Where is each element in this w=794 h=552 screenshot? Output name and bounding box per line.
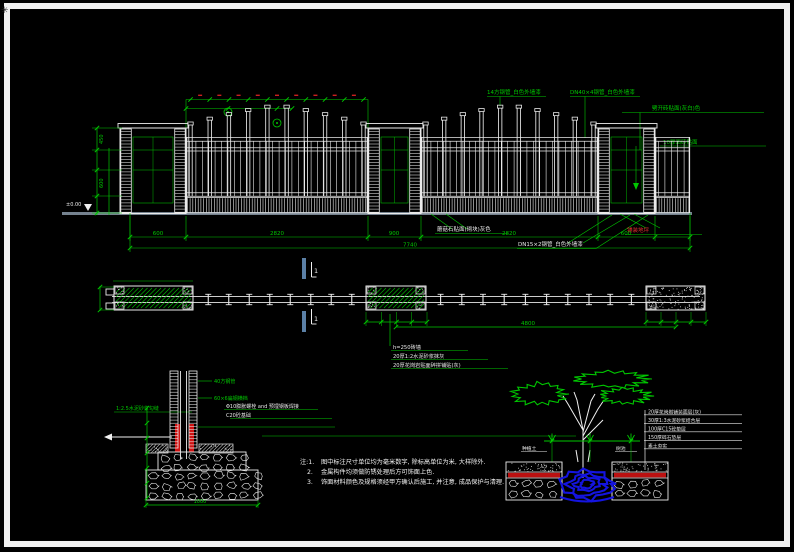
drawing-primitive	[552, 470, 553, 471]
drawing-primitive	[546, 466, 547, 467]
drawing-primitive	[368, 304, 369, 305]
drawing-primitive	[663, 307, 664, 308]
section-number-label: 1	[314, 267, 318, 275]
drawing-primitive	[200, 448, 201, 449]
note-number: 3.	[307, 479, 313, 486]
drawing-primitive	[662, 303, 663, 304]
drawing-primitive	[664, 301, 665, 302]
drawing-primitive	[422, 289, 423, 290]
drawing-primitive	[191, 305, 192, 306]
drawing-primitive	[690, 309, 691, 310]
drawing-primitive	[684, 301, 685, 302]
drawing-primitive	[374, 292, 375, 293]
drawing-primitive	[552, 465, 553, 466]
detail-circle-dot	[276, 122, 278, 124]
drawing-primitive	[527, 471, 528, 472]
drawing-primitive	[375, 294, 376, 295]
annotation-mushroom-stone: 蘑菇石贴面(砌块)灰色	[437, 225, 491, 233]
drawing-primitive	[653, 298, 654, 299]
drawing-primitive	[626, 469, 627, 470]
drawing-primitive	[651, 308, 652, 309]
annotation-pipe: DN40×4钢管_白色外墙漆	[570, 88, 635, 96]
drawing-primitive	[652, 294, 653, 295]
drawing-primitive	[544, 470, 545, 471]
drawing-primitive	[156, 448, 157, 449]
drawing-primitive	[120, 294, 121, 295]
drawing-primitive	[649, 303, 650, 304]
drawing-primitive	[541, 464, 542, 465]
drawing-primitive	[419, 289, 420, 290]
drawing-primitive	[544, 464, 545, 465]
layer-callout: 20厚花岗岩铺装面层(灰)	[648, 409, 701, 416]
drawing-primitive	[166, 448, 167, 449]
drawing-primitive	[122, 291, 123, 292]
bolt-callout: Φ10膨胀螺栓 and 预埋钢板焊接	[226, 403, 299, 410]
drawing-primitive	[419, 308, 420, 309]
annotation-dn15-pipe: DN15×2钢管_白色外墙漆	[518, 240, 583, 248]
drawing-primitive	[617, 463, 618, 464]
drawing-primitive	[519, 470, 520, 471]
drawing-primitive	[698, 307, 699, 308]
drawing-primitive	[694, 301, 695, 302]
drawing-primitive	[532, 470, 533, 471]
drawing-primitive	[627, 468, 628, 469]
drawing-primitive	[701, 305, 702, 306]
drawing-primitive	[656, 309, 657, 310]
drawing-primitive	[559, 468, 560, 469]
drawing-primitive	[704, 301, 705, 302]
dim-label-vertical: 450	[99, 134, 105, 144]
drawing-primitive	[651, 295, 652, 296]
drawing-primitive	[658, 465, 659, 466]
drawing-primitive	[373, 290, 374, 291]
drawing-primitive	[418, 288, 419, 289]
drawing-primitive	[191, 293, 192, 294]
drawing-primitive	[649, 309, 650, 310]
drawing-primitive	[621, 467, 622, 468]
drawing-primitive	[423, 291, 424, 292]
drawing-primitive	[699, 294, 700, 295]
drawing-primitive	[190, 307, 191, 308]
drawing-primitive	[658, 307, 659, 308]
drawing-primitive	[116, 292, 117, 293]
drawing-primitive	[424, 294, 425, 295]
tree-label-right: 树池	[616, 445, 626, 452]
drawing-primitive	[703, 308, 704, 309]
drawing-primitive	[122, 306, 123, 307]
drawing-primitive	[672, 295, 673, 296]
drawing-primitive	[369, 306, 370, 307]
drawing-primitive	[116, 293, 117, 294]
drawing-primitive	[632, 468, 633, 469]
drawing-primitive	[185, 305, 186, 306]
drawing-primitive	[556, 469, 557, 470]
drawing-primitive	[372, 302, 373, 303]
drawing-primitive	[682, 291, 683, 292]
drawing-primitive	[184, 290, 185, 291]
drawing-primitive	[123, 302, 124, 303]
drawing-primitive	[368, 287, 369, 288]
drawing-primitive	[217, 95, 221, 96]
drawing-primitive	[187, 292, 188, 293]
drawing-primitive	[215, 446, 216, 447]
drawing-primitive	[230, 449, 231, 450]
drawing-primitive	[418, 291, 419, 292]
drawing-primitive	[701, 299, 702, 300]
drawing-primitive	[521, 466, 522, 467]
drawing-primitive	[373, 287, 374, 288]
drawing-primitive	[704, 307, 705, 308]
drawing-primitive	[682, 293, 683, 294]
drawing-primitive	[372, 304, 373, 305]
drawing-primitive	[656, 292, 657, 293]
plaster-label: 1:2.5水泥砂浆勾缝	[116, 405, 159, 412]
drawing-primitive	[198, 95, 202, 96]
drawing-primitive	[655, 466, 656, 467]
drawing-primitive	[118, 289, 119, 290]
drawing-primitive	[685, 297, 686, 298]
drawing-primitive	[205, 444, 206, 445]
drawing-primitive	[531, 466, 532, 467]
dim-label: 600	[153, 231, 164, 237]
drawing-primitive	[694, 297, 695, 298]
drawing-primitive	[660, 306, 661, 307]
drawing-primitive	[698, 292, 699, 293]
drawing-primitive	[666, 295, 667, 296]
drawing-primitive	[649, 300, 650, 301]
drawing-primitive	[186, 304, 187, 305]
drawing-primitive	[122, 305, 123, 306]
drawing-primitive	[663, 288, 664, 289]
drawing-primitive	[697, 290, 698, 291]
drawing-primitive	[691, 288, 692, 289]
drawing-primitive	[620, 471, 621, 472]
layer-callout: 素土夯实	[648, 443, 667, 450]
drawing-primitive	[368, 307, 369, 308]
drawing-primitive	[680, 293, 681, 294]
drawing-primitive	[422, 303, 423, 304]
drawing-primitive	[629, 469, 630, 470]
drawing-primitive	[617, 469, 618, 470]
drawing-primitive	[682, 299, 683, 300]
drawing-primitive	[228, 449, 229, 450]
drawing-primitive	[521, 465, 522, 466]
drawing-primitive	[545, 467, 546, 468]
drawing-primitive	[650, 289, 651, 290]
drawing-primitive	[625, 470, 626, 471]
drawing-primitive	[527, 469, 528, 470]
drawing-primitive	[653, 305, 654, 306]
drawing-primitive	[508, 470, 509, 471]
drawing-primitive	[545, 470, 546, 471]
drawing-primitive	[670, 298, 671, 299]
drawing-primitive	[674, 296, 675, 297]
drawing-primitive	[541, 465, 542, 466]
drawing-primitive	[669, 290, 670, 291]
drawing-primitive	[622, 463, 623, 464]
drawing-primitive	[667, 463, 668, 464]
drawing-primitive	[544, 465, 545, 466]
drawing-primitive	[526, 463, 527, 464]
drawing-primitive	[650, 291, 651, 292]
drawing-primitive	[226, 449, 227, 450]
note-number: 注:1.	[300, 458, 314, 466]
drawing-primitive	[653, 293, 654, 294]
note-number: 2.	[307, 469, 313, 476]
drawing-primitive	[660, 292, 661, 293]
drawing-primitive	[419, 302, 420, 303]
frame-corner-glyph: ✳	[1, 6, 9, 16]
drawing-primitive	[692, 295, 693, 296]
drawing-primitive	[652, 303, 653, 304]
drawing-primitive	[294, 95, 298, 96]
drawing-primitive	[666, 470, 667, 471]
drawing-primitive	[690, 288, 691, 289]
drawing-primitive	[626, 470, 627, 471]
drawing-primitive	[646, 463, 647, 464]
drawing-primitive	[702, 308, 703, 309]
drawing-primitive	[686, 290, 687, 291]
drawing-primitive	[678, 304, 679, 305]
drawing-primitive	[538, 466, 539, 467]
drawing-primitive	[672, 307, 673, 308]
drawing-primitive	[649, 297, 650, 298]
drawing-primitive	[701, 288, 702, 289]
drawing-primitive	[660, 299, 661, 300]
drawing-primitive	[623, 471, 624, 472]
drawing-primitive	[656, 465, 657, 466]
drawing-primitive	[695, 308, 696, 309]
drawing-primitive	[663, 464, 664, 465]
drawing-primitive	[116, 306, 117, 307]
drawing-primitive	[661, 304, 662, 305]
drawing-primitive	[700, 292, 701, 293]
tree-label-left: 种植土	[522, 445, 537, 452]
drawing-primitive	[555, 463, 556, 464]
drawing-primitive	[542, 467, 543, 468]
drawing-primitive	[657, 470, 658, 471]
drawing-primitive	[623, 469, 624, 470]
drawing-primitive	[640, 465, 641, 466]
drawing-primitive	[424, 303, 425, 304]
dim-label: 600	[621, 231, 632, 237]
drawing-primitive	[371, 306, 372, 307]
drawing-primitive	[187, 308, 188, 309]
drawing-primitive	[552, 471, 553, 472]
drawing-primitive	[702, 294, 703, 295]
drawing-primitive	[556, 465, 557, 466]
drawing-primitive	[653, 292, 654, 293]
drawing-primitive	[685, 307, 686, 308]
section-cut-marker-bottom	[302, 311, 306, 332]
drawing-primitive	[237, 95, 241, 96]
drawing-primitive	[673, 293, 674, 294]
drawing-primitive	[687, 287, 688, 288]
layer-callout: 100厚C15砼垫层	[648, 426, 686, 433]
drawing-primitive	[674, 305, 675, 306]
drawing-primitive	[188, 308, 189, 309]
drawing-primitive	[651, 466, 652, 467]
drawing-primitive	[650, 308, 651, 309]
dim-label: 900	[389, 231, 400, 237]
drawing-primitive	[682, 297, 683, 298]
drawing-primitive	[548, 471, 549, 472]
dim-total-label: 7740	[403, 243, 417, 249]
drawing-primitive	[648, 470, 649, 471]
drawing-primitive	[417, 303, 418, 304]
drawing-primitive	[368, 290, 369, 291]
drawing-primitive	[537, 468, 538, 469]
drawing-primitive	[375, 288, 376, 289]
drawing-primitive	[526, 467, 527, 468]
plan-dim-label: 4800	[521, 321, 535, 327]
drawing-primitive	[190, 307, 191, 308]
drawing-primitive	[703, 303, 704, 304]
drawing-primitive	[524, 469, 525, 470]
drawing-primitive	[701, 307, 702, 308]
drawing-primitive	[689, 287, 690, 288]
drawing-primitive	[166, 449, 167, 450]
drawing-primitive	[424, 287, 425, 288]
drawing-primitive	[229, 445, 230, 446]
drawing-primitive	[543, 467, 544, 468]
drawing-primitive	[653, 288, 654, 289]
drawing-primitive	[117, 303, 118, 304]
drawing-primitive	[164, 453, 165, 454]
footing-dim-label: 1000	[194, 499, 207, 505]
drawing-primitive	[671, 303, 672, 304]
drawing-primitive	[698, 304, 699, 305]
drawing-primitive	[692, 309, 693, 310]
drawing-primitive	[649, 305, 650, 306]
drawing-primitive	[624, 467, 625, 468]
drawing-primitive	[163, 445, 164, 446]
drawing-primitive	[542, 470, 543, 471]
drawing-primitive	[702, 297, 703, 298]
drawing-primitive	[700, 289, 701, 290]
drawing-primitive	[654, 307, 655, 308]
drawing-primitive	[508, 473, 560, 478]
drawing-primitive	[651, 305, 652, 306]
drawing-primitive	[184, 288, 185, 289]
drawing-primitive	[686, 288, 687, 289]
drawing-primitive	[701, 291, 702, 292]
drawing-primitive	[153, 452, 154, 453]
drawing-primitive	[655, 288, 656, 289]
plan-callout: h=250砖墙	[393, 343, 421, 351]
drawing-primitive	[679, 294, 680, 295]
drawing-primitive	[117, 287, 118, 288]
drawing-primitive	[655, 307, 656, 308]
drawing-primitive	[675, 296, 676, 297]
drawing-primitive	[690, 290, 691, 291]
drawing-primitive	[626, 464, 627, 465]
drawing-primitive	[622, 465, 623, 466]
drawing-primitive	[675, 301, 676, 302]
drawing-primitive	[370, 305, 371, 306]
drawing-primitive	[614, 473, 666, 478]
drawing-primitive	[118, 305, 119, 306]
drawing-primitive	[166, 445, 167, 446]
drawing-primitive	[638, 464, 639, 465]
drawing-primitive	[649, 292, 650, 293]
drawing-primitive	[658, 302, 659, 303]
drawing-primitive	[676, 288, 677, 289]
layer-callout: 30厚1:3水泥砂浆结合层	[648, 417, 700, 424]
drawing-primitive	[352, 95, 356, 96]
drawing-primitive	[622, 467, 623, 468]
note-line: 图中标注尺寸单位均为毫米数字, 除标高单位为米, 大样除外.	[321, 458, 486, 466]
drawing-primitive	[225, 448, 226, 449]
drawing-primitive	[185, 292, 186, 293]
drawing-primitive	[641, 471, 642, 472]
drawing-primitive	[511, 463, 512, 464]
steel-label-2: 60×6扁钢横档	[214, 395, 248, 402]
drawing-primitive	[151, 450, 152, 451]
drawing-primitive	[661, 468, 662, 469]
drawing-primitive	[648, 469, 649, 470]
drawing-primitive	[417, 306, 418, 307]
drawing-primitive	[650, 306, 651, 307]
drawing-primitive	[625, 471, 626, 472]
drawing-primitive	[374, 306, 375, 307]
drawing-primitive	[656, 467, 657, 468]
drawing-primitive	[680, 306, 681, 307]
drawing-primitive	[213, 444, 214, 445]
drawing-primitive	[189, 308, 190, 309]
drawing-primitive	[370, 303, 371, 304]
drawing-primitive	[678, 294, 679, 295]
drawing-primitive	[561, 471, 562, 472]
drawing-primitive	[701, 300, 702, 301]
drawing-primitive	[313, 95, 317, 96]
drawing-primitive	[518, 468, 519, 469]
drawing-primitive	[528, 468, 529, 469]
steel-label-1: 40方钢管	[214, 378, 235, 385]
plan-callout: 20厚花岗岩贴面碎拼铺贴(灰)	[393, 361, 461, 369]
annotation-steel-tube: 14方钢管_白色外墙漆	[487, 88, 541, 96]
drawing-primitive	[648, 468, 649, 469]
drawing-primitive	[614, 471, 615, 472]
drawing-primitive	[215, 445, 216, 446]
drawing-primitive	[425, 291, 426, 292]
drawing-primitive	[675, 303, 676, 304]
drawing-primitive	[696, 303, 697, 304]
drawing-primitive	[530, 469, 531, 470]
drawing-primitive	[540, 467, 541, 468]
annotation-split-brick: 劈开砖贴面(灰白)色	[652, 104, 701, 112]
drawing-primitive	[423, 292, 424, 293]
drawing-primitive	[678, 309, 679, 310]
drawing-primitive	[371, 293, 372, 294]
drawing-primitive	[550, 470, 551, 471]
drawing-primitive	[689, 289, 690, 290]
drawing-primitive	[367, 292, 368, 293]
drawing-primitive	[698, 295, 699, 296]
drawing-primitive	[420, 305, 421, 306]
drawing-primitive	[665, 464, 666, 465]
note-line: 饰面材料颜色及规格须经甲方确认后施工, 并注意, 成品保护与清理.	[321, 478, 504, 486]
drawing-primitive	[661, 301, 662, 302]
drawing-primitive	[657, 300, 658, 301]
drawing-primitive	[559, 466, 560, 467]
drawing-primitive	[546, 465, 547, 466]
drawing-primitive	[121, 287, 122, 288]
drawing-primitive	[673, 288, 674, 289]
drawing-primitive	[191, 290, 192, 291]
drawing-primitive	[687, 307, 688, 308]
drawing-primitive	[652, 307, 653, 308]
